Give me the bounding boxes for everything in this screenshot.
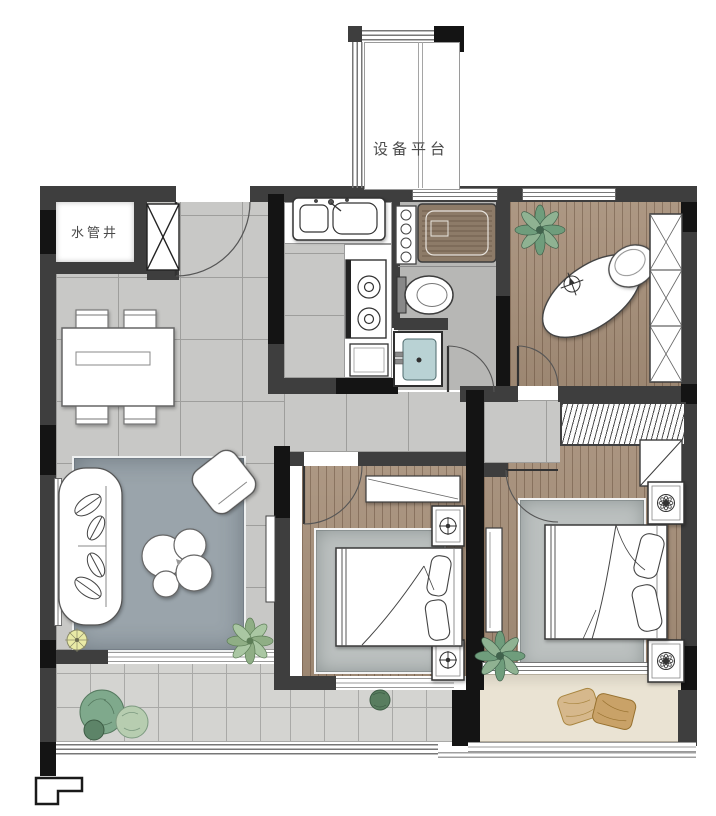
study-plant [515, 205, 565, 255]
bedroom2-door [304, 466, 362, 524]
master-bed [545, 525, 667, 639]
furniture-layer [0, 0, 716, 816]
kitchen-cabinet [350, 344, 388, 376]
entrance-door [176, 202, 250, 276]
bedroom2-bed [336, 548, 462, 646]
step-symbol [36, 778, 82, 804]
bedroom2-nightstand-top [432, 506, 464, 546]
master-plant [475, 631, 525, 681]
bathroom-door [448, 346, 494, 392]
armchair [188, 446, 261, 519]
living-plant [227, 618, 273, 664]
shaft-x-symbol [147, 204, 179, 270]
bedroom2-desk [366, 476, 460, 502]
washbasin [394, 332, 442, 386]
master-side-cabinet [486, 528, 502, 632]
bathtub [418, 204, 496, 262]
kitchen-double-sink [293, 198, 385, 240]
sofa [59, 468, 122, 625]
bath-storage-shelf [396, 206, 416, 264]
coffee-table-set [142, 529, 212, 597]
master-nightstand-bottom [648, 640, 684, 682]
dining-table-set [62, 310, 174, 424]
study-door [518, 346, 558, 386]
master-corner-closet [640, 440, 682, 486]
toilet [397, 276, 453, 314]
study-wardrobe [650, 214, 682, 382]
balcony-plants [80, 690, 148, 740]
bay-pillow-right [591, 692, 637, 731]
floor-plan: 水管井 设备平台 [0, 0, 716, 816]
floor-lamp [65, 628, 89, 652]
master-nightstand-top [648, 482, 684, 524]
master-door [506, 470, 558, 522]
wall-tv [266, 516, 275, 602]
bedroom2-balcony-plant [370, 690, 390, 710]
kitchen-stove [346, 260, 386, 338]
